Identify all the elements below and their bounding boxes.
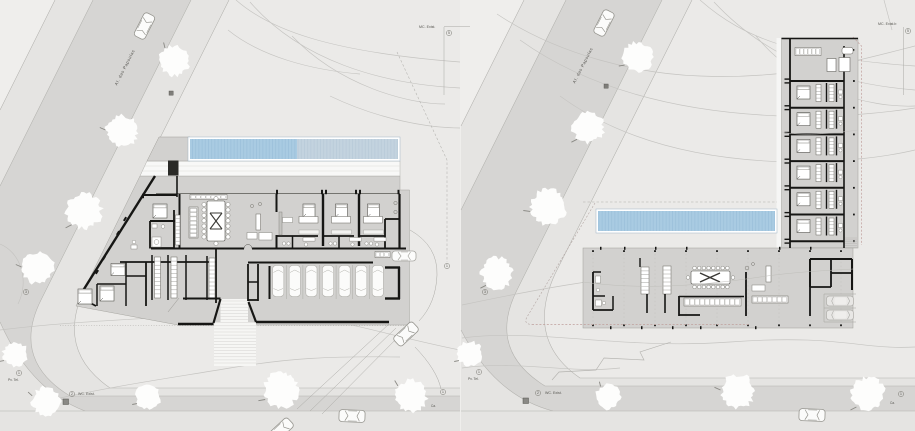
svg-text:1: 1 bbox=[446, 264, 448, 268]
svg-text:MC. Exist.b: MC. Exist.b bbox=[878, 22, 896, 26]
svg-text:Ca.: Ca. bbox=[431, 404, 436, 408]
svg-text:MC. Exist.: MC. Exist. bbox=[419, 25, 435, 29]
svg-text:3: 3 bbox=[25, 290, 27, 294]
svg-text:1: 1 bbox=[900, 392, 902, 396]
svg-text:Ca.: Ca. bbox=[890, 401, 895, 405]
svg-text:Pv. Tel.: Pv. Tel. bbox=[468, 377, 479, 381]
svg-text:WC. Exist.: WC. Exist. bbox=[545, 391, 562, 395]
svg-text:1: 1 bbox=[478, 370, 480, 374]
svg-text:1: 1 bbox=[442, 390, 444, 394]
svg-text:2: 2 bbox=[71, 392, 73, 396]
svg-text:WC. Exist.: WC. Exist. bbox=[78, 392, 95, 396]
svg-text:5: 5 bbox=[907, 29, 909, 33]
svg-text:Pv. Tel.: Pv. Tel. bbox=[8, 378, 19, 382]
svg-text:3: 3 bbox=[484, 290, 486, 294]
svg-text:1: 1 bbox=[18, 371, 20, 375]
svg-text:2: 2 bbox=[537, 391, 539, 395]
svg-text:5: 5 bbox=[448, 31, 450, 35]
